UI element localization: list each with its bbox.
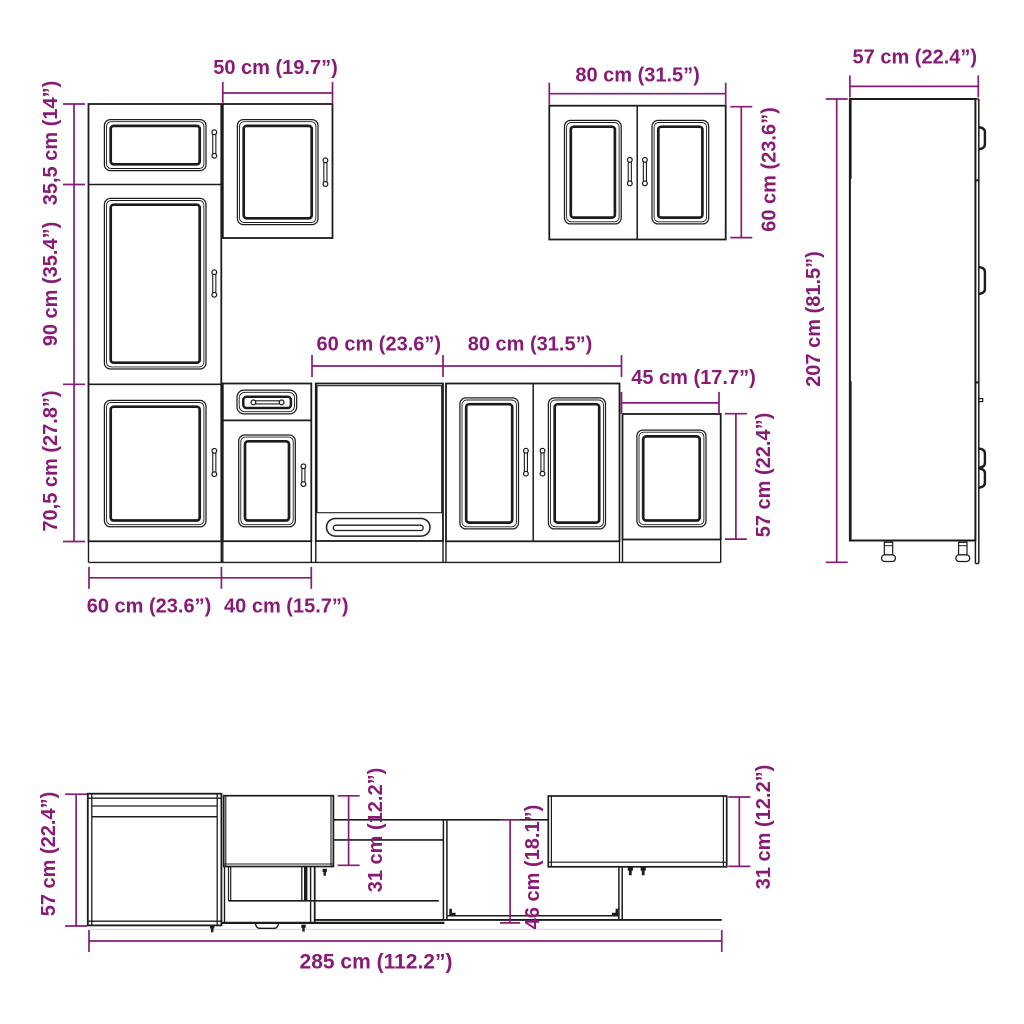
- svg-text:90 cm (35.4”): 90 cm (35.4”): [40, 222, 62, 347]
- svg-text:60 cm (23.6”): 60 cm (23.6”): [317, 334, 442, 356]
- svg-text:70,5 cm (27.8”): 70,5 cm (27.8”): [40, 390, 62, 531]
- svg-text:80 cm (31.5”): 80 cm (31.5”): [575, 65, 700, 87]
- svg-text:40 cm (15.7”): 40 cm (15.7”): [224, 596, 349, 618]
- svg-text:50 cm (19.7”): 50 cm (19.7”): [213, 57, 338, 79]
- svg-text:31 cm (12.2”): 31 cm (12.2”): [753, 765, 775, 890]
- svg-text:207 cm (81.5”): 207 cm (81.5”): [803, 251, 825, 387]
- svg-text:45 cm (17.7”): 45 cm (17.7”): [631, 367, 756, 389]
- svg-text:46 cm (18.1”): 46 cm (18.1”): [522, 805, 544, 930]
- svg-text:80 cm (31.5”): 80 cm (31.5”): [468, 334, 593, 356]
- svg-text:57 cm (22.4”): 57 cm (22.4”): [753, 413, 775, 538]
- svg-text:285 cm (112.2”): 285 cm (112.2”): [300, 951, 453, 974]
- svg-text:60 cm (23.6”): 60 cm (23.6”): [759, 107, 781, 232]
- svg-text:60 cm (23.6”): 60 cm (23.6”): [87, 596, 212, 618]
- svg-text:31 cm (12.2”): 31 cm (12.2”): [365, 768, 387, 893]
- svg-text:35,5 cm (14”): 35,5 cm (14”): [40, 81, 62, 206]
- svg-text:57 cm (22.4”): 57 cm (22.4”): [853, 46, 978, 68]
- svg-text:57 cm (22.4”): 57 cm (22.4”): [38, 792, 60, 917]
